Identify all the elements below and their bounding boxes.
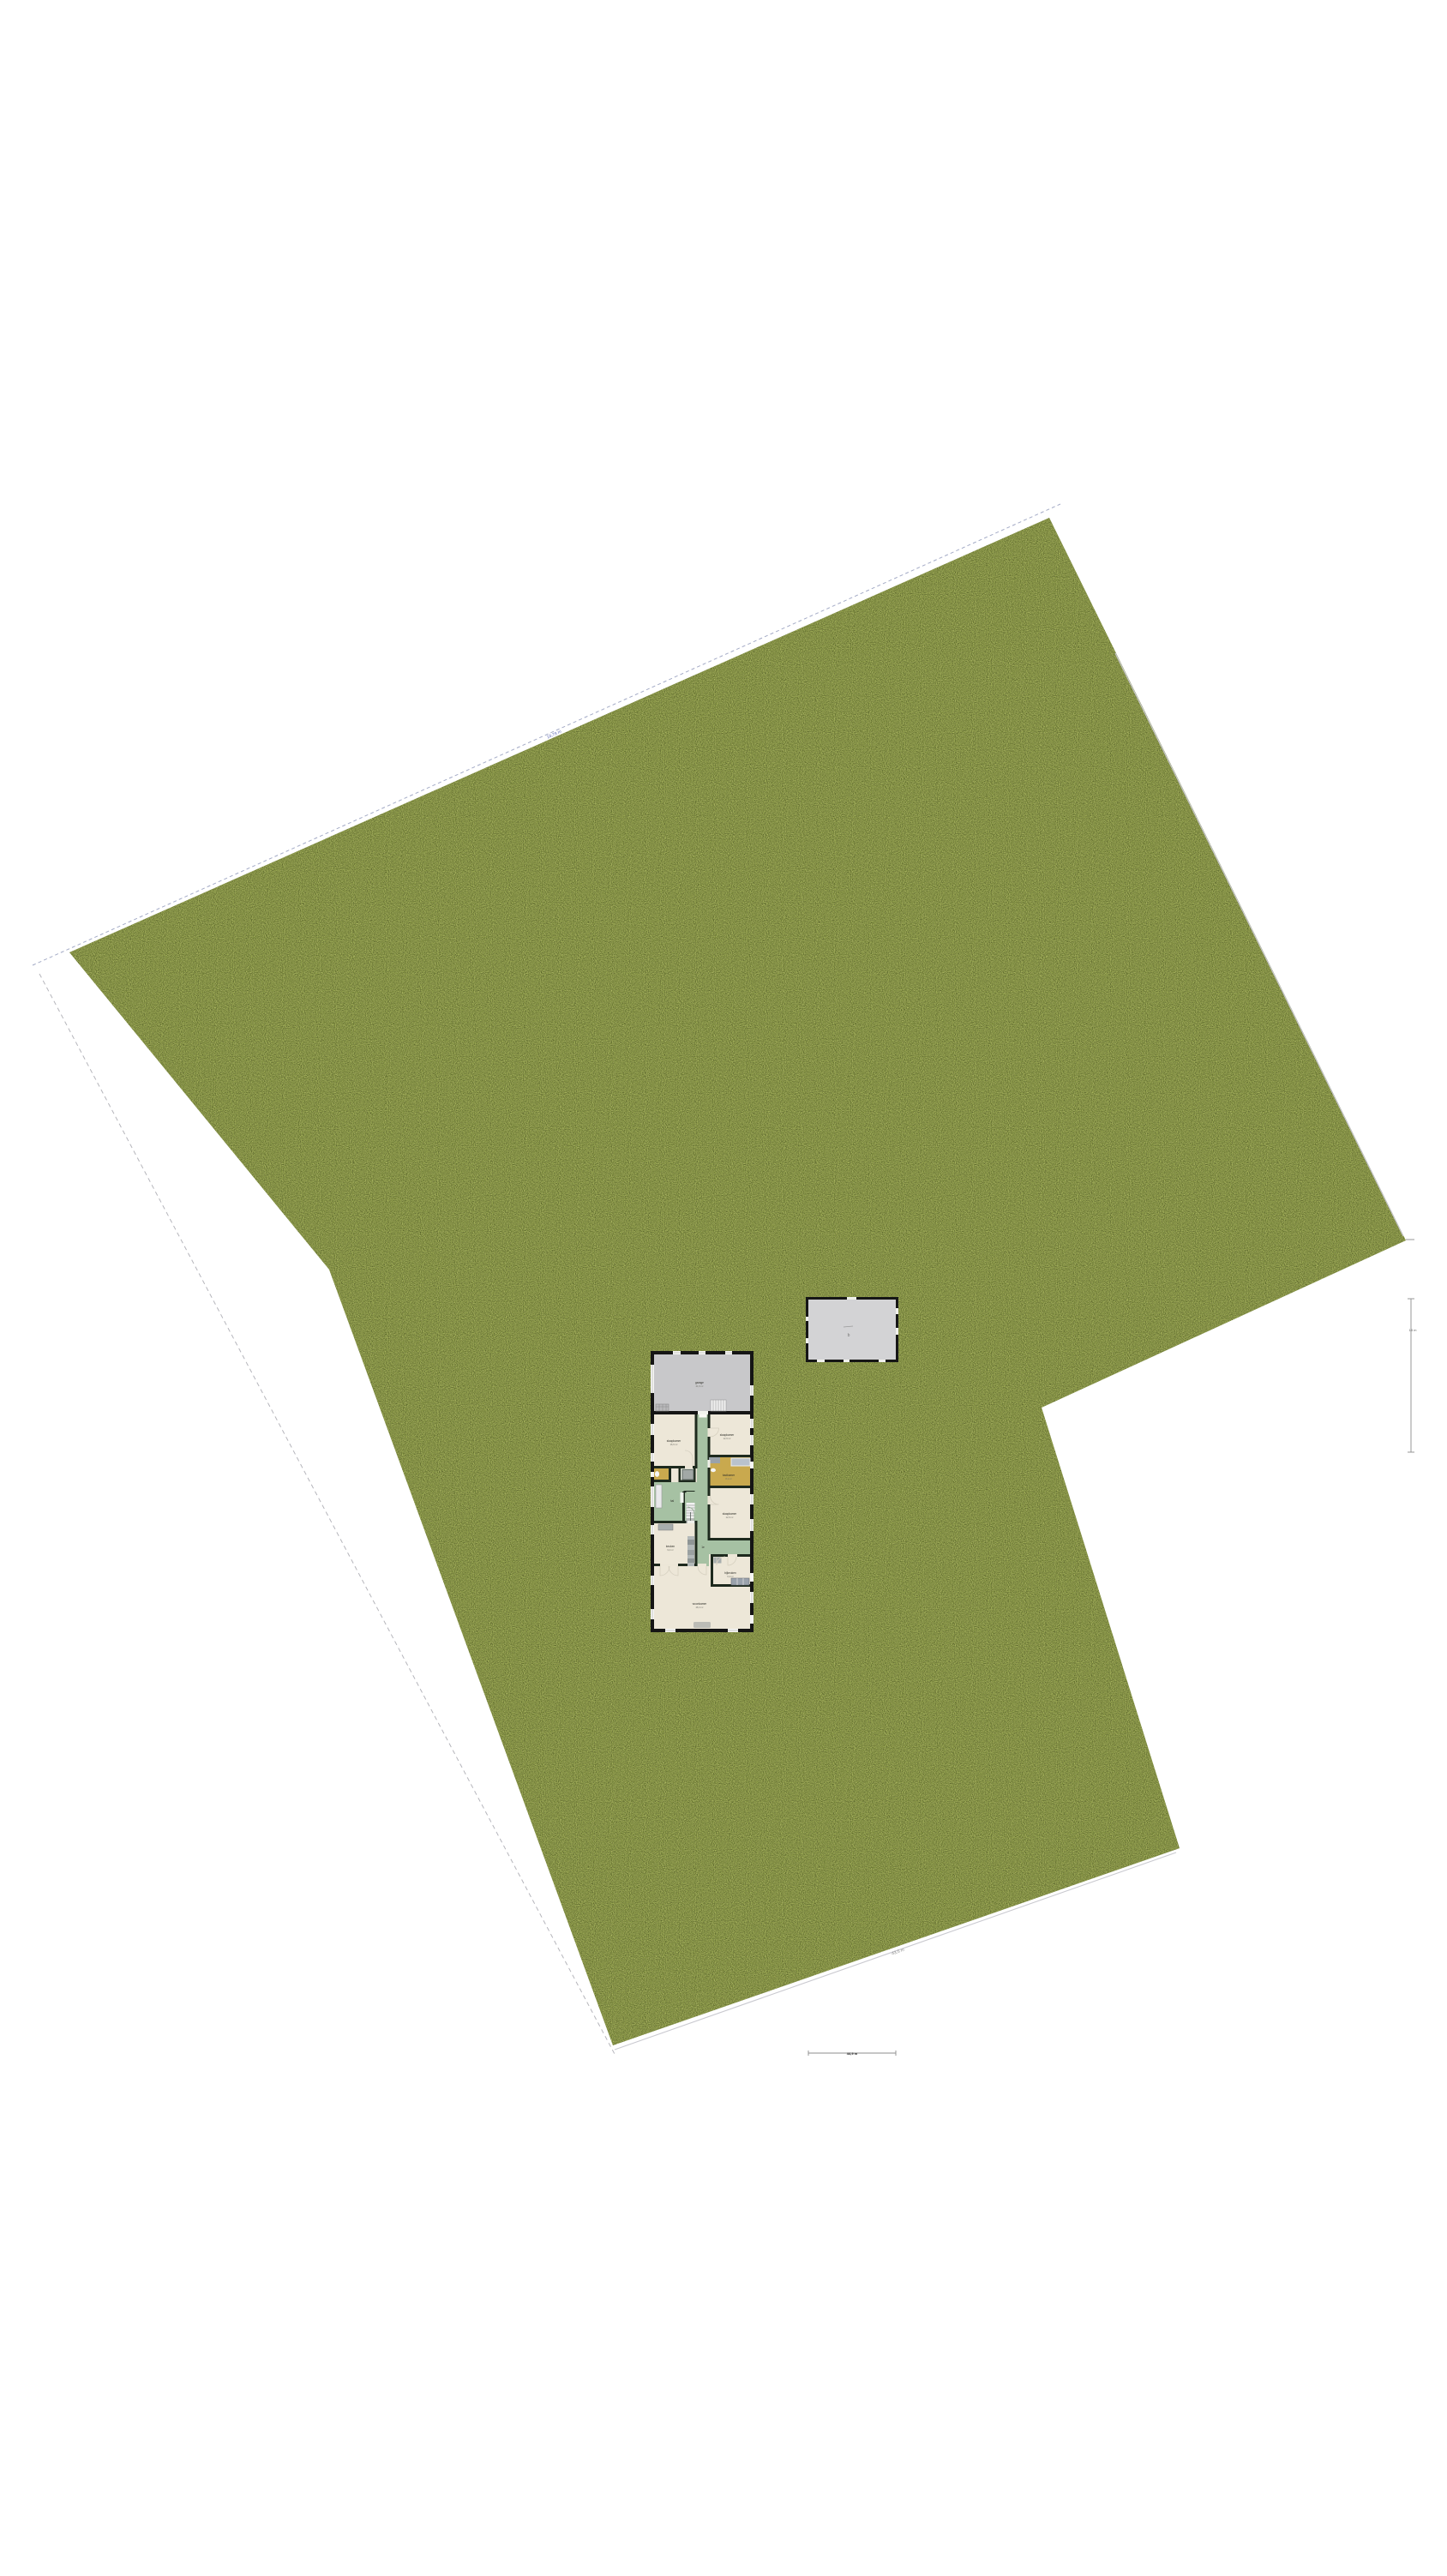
svg-text:12,9 m²: 12,9 m²: [726, 1516, 734, 1519]
svg-text:6,4 m²: 6,4 m²: [727, 1575, 733, 1578]
svg-text:woonkamer: woonkamer: [693, 1602, 707, 1606]
svg-text:slaapkamer: slaapkamer: [667, 1439, 681, 1443]
svg-text:garage: garage: [695, 1381, 704, 1384]
svg-text:b: b: [848, 1333, 850, 1338]
svg-text:slaapkamer: slaapkamer: [723, 1512, 737, 1516]
svg-text:keuken: keuken: [666, 1545, 675, 1548]
svg-text:43,5 m: 43,5 m: [891, 1948, 904, 1957]
svg-text:badkamer: badkamer: [723, 1474, 736, 1477]
svg-text:12,9 m²: 12,9 m²: [723, 1437, 731, 1440]
svg-text:hal: hal: [670, 1499, 675, 1503]
svg-text:9,2 m²: 9,2 m²: [667, 1548, 673, 1552]
svg-text:1e: 1e: [701, 1546, 705, 1549]
svg-text:8,1 m²: 8,1 m²: [725, 1477, 731, 1480]
svg-text:bijkeuken: bijkeuken: [724, 1571, 736, 1575]
svg-text:44,9 m: 44,9 m: [847, 2051, 858, 2056]
svg-text:16,6 m²: 16,6 m²: [670, 1443, 678, 1446]
svg-text:28,4 m²: 28,4 m²: [696, 1606, 704, 1609]
svg-text:21,6 m²: 21,6 m²: [696, 1384, 704, 1388]
svg-text:18 m: 18 m: [1409, 1328, 1418, 1332]
svg-text:slaapkamer: slaapkamer: [720, 1433, 735, 1437]
